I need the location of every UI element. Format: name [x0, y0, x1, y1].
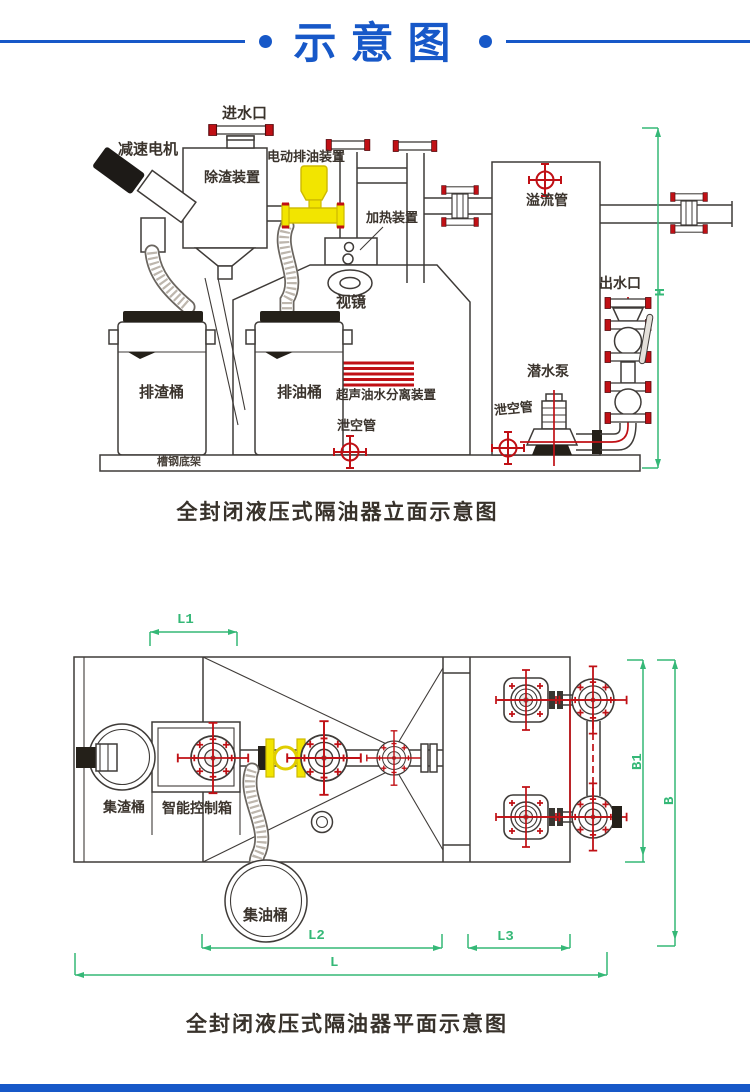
label-sight-glass: 视镜: [336, 295, 366, 310]
label-dim-h: H: [651, 288, 665, 296]
plan-caption: 全封闭液压式隔油器平面示意图: [0, 1008, 694, 1038]
label-overflow-pipe: 溢流管: [526, 193, 568, 207]
diagram-line-art: .hA{fill:none;stroke:#6b6660;stroke-widt…: [0, 0, 750, 1092]
label-heating-device: 加热装置: [366, 211, 418, 224]
bottom-accent-bar: [0, 1084, 750, 1092]
label-dim-l2: L2: [308, 929, 325, 943]
label-electric-oil-discharge: 电动排油装置: [267, 150, 345, 163]
label-dim-b: B: [663, 797, 677, 805]
water-inlet-pipe: [209, 125, 273, 149]
electric-oil-discharge-shape: [282, 166, 344, 227]
label-drain-pipe-left: 泄空管: [337, 419, 376, 432]
label-drain-pipe-right: 泄空管: [493, 400, 533, 417]
gear-motor-shape: [92, 146, 196, 252]
label-oil-collection-barrel: 集油桶: [243, 908, 288, 923]
label-dim-l: L: [330, 956, 338, 970]
elevation-line-art: [92, 125, 732, 472]
label-slag-removal-device: 除渣装置: [204, 170, 260, 184]
label-dim-l3: L3: [497, 930, 514, 944]
slag-removal-device-shape: [183, 148, 283, 279]
oil-collection-barrel-shape: [225, 860, 307, 942]
slag-hose: [152, 252, 188, 307]
elevation-caption: 全封闭液压式隔油器立面示意图: [0, 496, 675, 526]
label-steel-base-frame: 槽钢底架: [157, 457, 201, 468]
label-slag-discharge-barrel: 排渣桶: [139, 385, 184, 400]
label-dim-b1: B1: [631, 753, 645, 770]
slag-barrel-shape: [109, 311, 215, 455]
sight-glass-shape: [328, 270, 372, 296]
oil-hose: [284, 226, 292, 310]
label-submersible-pump: 潜水泵: [527, 364, 569, 378]
label-slag-collection-barrel: 集渣桶: [103, 800, 145, 814]
label-dim-l1: L1: [177, 613, 194, 627]
label-oil-discharge-barrel: 排油桶: [277, 385, 322, 400]
oil-barrel-shape: [246, 311, 352, 455]
label-water-outlet: 出水口: [599, 276, 641, 290]
schematic-page: 示意图: [0, 0, 750, 1092]
label-smart-control-box: 智能控制箱: [162, 801, 232, 815]
label-gear-motor: 减速电机: [118, 142, 178, 157]
label-water-inlet: 进水口: [222, 106, 267, 121]
outlet-valve-stack: [600, 298, 653, 451]
label-ultrasonic-separator: 超声油水分离装置: [336, 389, 436, 402]
